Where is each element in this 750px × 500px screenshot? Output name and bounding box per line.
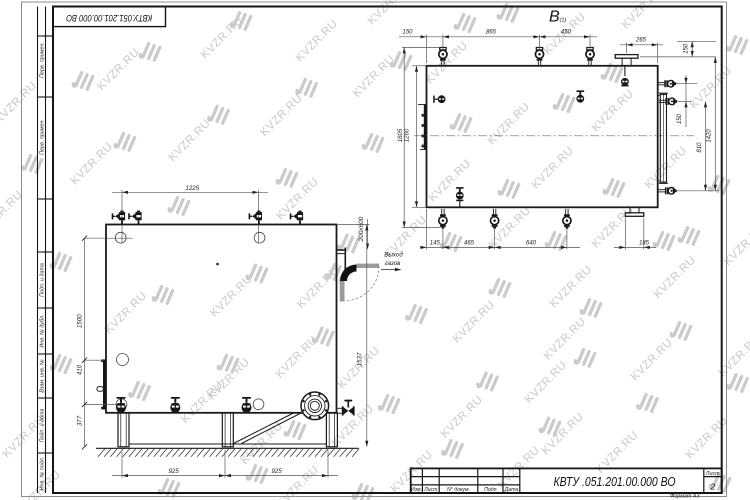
svg-text:KVZR.RU: KVZR.RU [351, 53, 398, 100]
svg-text:Выход: Выход [384, 252, 403, 259]
svg-text:150: 150 [402, 30, 413, 36]
svg-text:Взам. инв. №: Взам. инв. № [40, 359, 46, 393]
svg-text:1260: 1260 [404, 128, 410, 142]
svg-text:Лист: Лист [423, 487, 438, 493]
svg-text:KVZR.RU: KVZR.RU [275, 464, 322, 500]
svg-text:KVZR.RU: KVZR.RU [590, 88, 637, 135]
svg-text:145: 145 [430, 240, 441, 246]
svg-text:KVZR.RU: KVZR.RU [722, 222, 750, 269]
svg-text:Подп. и дата: Подп. и дата [40, 263, 46, 297]
svg-text:KVZR.RU: KVZR.RU [0, 80, 39, 127]
svg-text:KVZR.RU: KVZR.RU [629, 337, 676, 384]
svg-text:150: 150 [677, 113, 683, 124]
svg-text:KVZR.RU: KVZR.RU [684, 415, 731, 462]
svg-text:KVZR.RU: KVZR.RU [451, 299, 498, 346]
svg-text:N° докум.: N° докум. [447, 487, 470, 493]
svg-text:KVZR.RU: KVZR.RU [439, 394, 486, 441]
svg-text:Лист: Лист [705, 471, 720, 477]
svg-text:640: 640 [526, 240, 537, 246]
svg-text:KVZR.RU: KVZR.RU [95, 46, 142, 93]
svg-text:410: 410 [77, 364, 84, 375]
svg-text:KVZR.RU: KVZR.RU [424, 40, 471, 87]
svg-text:1500: 1500 [77, 314, 84, 328]
svg-text:KVZR.RU: KVZR.RU [69, 141, 116, 188]
svg-text:925: 925 [168, 468, 179, 475]
svg-text:Инв. № дубл.: Инв. № дубл. [40, 314, 46, 347]
svg-text:1420: 1420 [707, 129, 713, 143]
svg-text:KVZR.RU: KVZR.RU [179, 379, 226, 426]
svg-text:450: 450 [561, 30, 572, 36]
svg-text:Дата: Дата [504, 487, 519, 493]
svg-text:В: В [549, 9, 560, 26]
svg-text:1537: 1537 [356, 352, 363, 366]
svg-text:Перв. примен.: Перв. примен. [40, 119, 46, 155]
svg-text:1225: 1225 [185, 185, 199, 192]
svg-text:KVZR.RU: KVZR.RU [486, 101, 533, 148]
svg-text:газов: газов [385, 260, 402, 267]
svg-text:KVZR.RU: KVZR.RU [166, 117, 213, 164]
svg-text:Формат А3: Формат А3 [670, 494, 700, 500]
svg-text:(1): (1) [560, 18, 567, 24]
svg-text:465: 465 [464, 240, 475, 246]
svg-text:KVZR.RU: KVZR.RU [199, 15, 246, 62]
svg-text:150: 150 [684, 43, 690, 54]
svg-text:810: 810 [697, 142, 703, 153]
svg-text:KVZR.RU: KVZR.RU [103, 290, 150, 337]
svg-text:Инв. № подл.: Инв. № подл. [40, 457, 46, 490]
svg-text:377: 377 [77, 415, 84, 426]
svg-text:КВТУ.051.201.00.000 ВО: КВТУ.051.201.00.000 ВО [66, 13, 152, 23]
svg-text:KVZR.RU: KVZR.RU [590, 204, 637, 251]
svg-text:Подп.: Подп. [484, 487, 498, 493]
svg-text:KVZR.RU: KVZR.RU [294, 18, 341, 65]
svg-text:KVZR.RU: KVZR.RU [530, 145, 577, 192]
svg-text:KVZR.RU: KVZR.RU [258, 92, 305, 139]
svg-text:865: 865 [486, 30, 497, 36]
svg-text:185: 185 [639, 240, 650, 246]
svg-text:KVZR.RU: KVZR.RU [652, 254, 699, 301]
svg-text:925: 925 [271, 468, 282, 475]
svg-text:KVZR.RU: KVZR.RU [336, 345, 383, 392]
svg-text:KVZR.RU: KVZR.RU [427, 158, 474, 205]
svg-text:Подп. и дата: Подп. и дата [40, 409, 46, 443]
svg-text:200х600: 200х600 [358, 216, 365, 242]
svg-text:KVZR.RU: KVZR.RU [688, 65, 735, 112]
svg-text:KVZR.RU: KVZR.RU [540, 411, 587, 458]
svg-text:KVZR.RU: KVZR.RU [295, 264, 342, 311]
svg-text:KVZR.RU: KVZR.RU [523, 359, 570, 406]
svg-text:Изм.: Изм. [411, 487, 422, 493]
svg-text:2: 2 [709, 482, 715, 492]
svg-text:Перв. примен.: Перв. примен. [40, 42, 46, 78]
svg-text:KVZR.RU: KVZR.RU [366, 0, 413, 27]
svg-text:KVZR.RU: KVZR.RU [620, 0, 667, 31]
svg-text:1605: 1605 [398, 128, 404, 142]
svg-text:КВТУ .051.201.00.000 ВО: КВТУ .051.201.00.000 ВО [554, 474, 676, 489]
svg-text:265: 265 [635, 38, 647, 44]
